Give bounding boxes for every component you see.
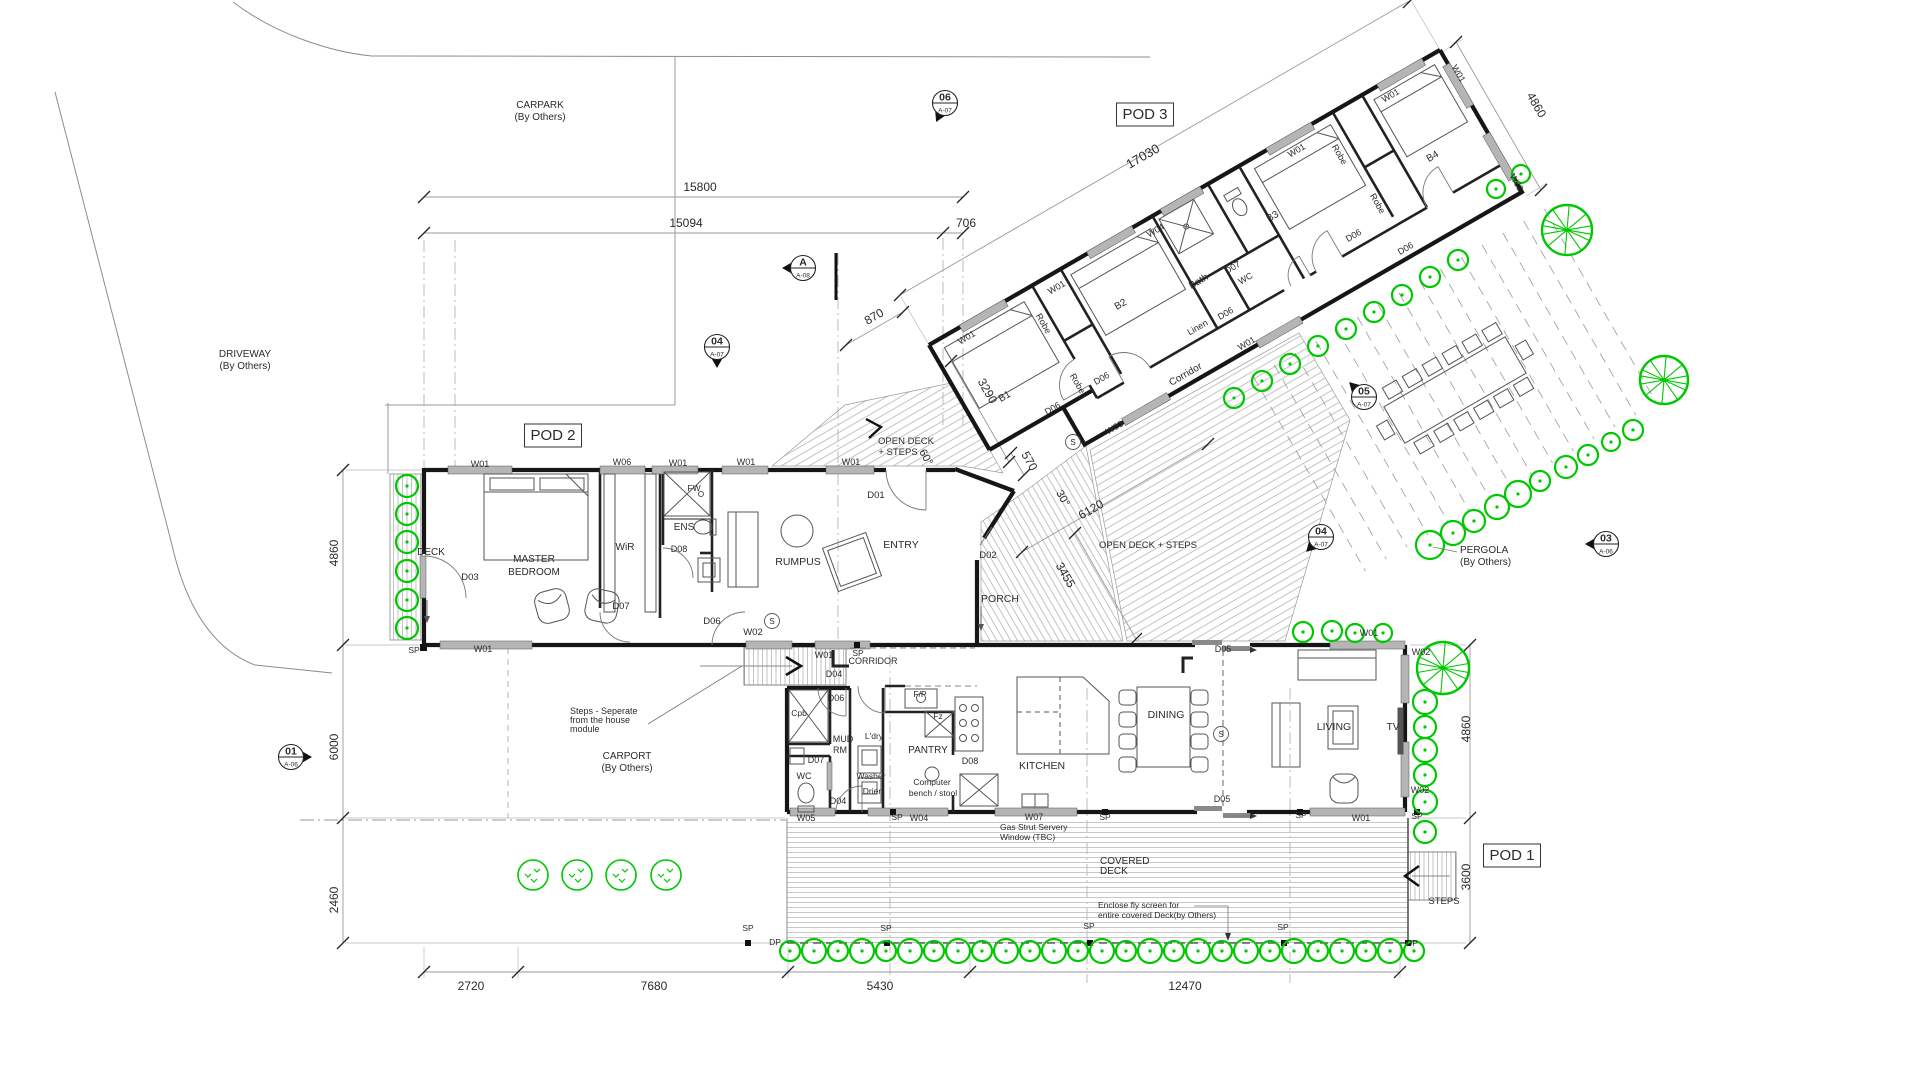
svg-text:2460: 2460 xyxy=(327,886,341,913)
room-b1: B1 xyxy=(997,389,1013,405)
svg-text:2720: 2720 xyxy=(458,979,485,993)
door-d08-kitchen: D08 xyxy=(962,756,979,766)
tree-icon xyxy=(972,941,992,961)
svg-text:A-07: A-07 xyxy=(1357,402,1371,409)
room-ens: ENS xyxy=(674,522,695,533)
driveway-sub: (By Others) xyxy=(219,361,270,372)
carport-tree-icon xyxy=(518,860,548,890)
sp-2: SP xyxy=(1099,812,1111,822)
svg-text:POD 1: POD 1 xyxy=(1489,847,1534,864)
dim-15800: 15800 xyxy=(683,180,717,194)
room-corridor1: CORRIDOR xyxy=(849,656,898,666)
note-fly-1: Enclose fly screen for xyxy=(1098,900,1179,910)
svg-text:OPEN DECK + STEPS: OPEN DECK + STEPS xyxy=(1099,540,1197,551)
tree-icon xyxy=(1414,821,1436,843)
tree-icon xyxy=(1293,622,1313,642)
carpark-sub: (By Others) xyxy=(514,112,565,123)
win-w04-b: W04 xyxy=(910,813,929,823)
svg-text:PERGOLA: PERGOLA xyxy=(1460,545,1509,556)
win-w01-entry: W01 xyxy=(842,457,861,467)
svg-text:OPEN DECK: OPEN DECK xyxy=(878,436,935,447)
svg-text:A-06: A-06 xyxy=(284,762,298,769)
tree-icon xyxy=(780,941,800,961)
robe-2: Robe xyxy=(1068,372,1087,396)
svg-text:Robe: Robe xyxy=(1068,372,1087,396)
note-gas-1: Gas Strut Servery xyxy=(1000,822,1068,832)
svg-text:06: 06 xyxy=(939,92,951,104)
svg-text:(By Others): (By Others) xyxy=(601,763,652,774)
dim-870: 870 xyxy=(862,305,887,327)
sp-d3: SP xyxy=(1083,921,1095,931)
dim-570: 570 xyxy=(1018,449,1040,474)
svg-text:RUMPUS: RUMPUS xyxy=(775,556,821,568)
open-deck-small-1: OPEN DECK xyxy=(878,436,935,447)
tree-icon xyxy=(1448,250,1468,270)
room-kitchen: KITCHEN xyxy=(1019,760,1065,772)
svg-text:870: 870 xyxy=(862,305,887,327)
svg-text:D06: D06 xyxy=(1092,370,1111,387)
open-deck-small-area xyxy=(772,383,1003,473)
svg-text:SP: SP xyxy=(1411,811,1423,821)
fixture-tv: TV xyxy=(1387,722,1400,733)
svg-text:DP: DP xyxy=(1406,938,1418,948)
tree-icon xyxy=(828,941,848,961)
svg-text:DINING: DINING xyxy=(1148,709,1185,721)
dp-2: DP xyxy=(1406,938,1418,948)
svg-text:Washer: Washer xyxy=(857,771,886,781)
carpark-title: CARPARK xyxy=(516,100,564,111)
svg-text:A-07: A-07 xyxy=(710,352,724,359)
fixture-fz: Fz xyxy=(933,711,942,721)
svg-text:BEDROOM: BEDROOM xyxy=(508,567,560,578)
tree-icon xyxy=(1414,764,1436,786)
tree-icon xyxy=(1623,420,1643,440)
room-mud-2: RM xyxy=(833,745,847,755)
marker-06: 06A-07 xyxy=(933,91,958,123)
room-porch: PORCH xyxy=(981,593,1019,605)
fixture-fp: F/P xyxy=(913,689,927,699)
driveway-title: DRIVEWAY xyxy=(219,349,272,360)
tree-icon xyxy=(1505,481,1531,507)
room-dining: DINING xyxy=(1148,709,1185,721)
svg-text:SP: SP xyxy=(891,812,903,822)
svg-text:15800: 15800 xyxy=(683,180,717,194)
carport-tree-icon xyxy=(606,860,636,890)
marker-a: AA-08 xyxy=(782,256,816,281)
tree-icon xyxy=(1530,471,1550,491)
svg-text:A-07: A-07 xyxy=(938,108,952,115)
marker-04-left: 04A-07 xyxy=(705,335,730,369)
svg-text:Robe: Robe xyxy=(1330,143,1349,167)
svg-text:W02: W02 xyxy=(1411,785,1430,795)
tree-icon xyxy=(1602,433,1620,451)
win-w01-p2b: W01 xyxy=(669,458,688,468)
svg-text:D04: D04 xyxy=(830,796,847,806)
svg-text:DP: DP xyxy=(769,937,781,947)
tree-icon xyxy=(1414,716,1436,738)
svg-text:CORRIDOR: CORRIDOR xyxy=(849,656,898,666)
room-wc3: WC xyxy=(1237,270,1255,286)
carport-sub: (By Others) xyxy=(601,763,652,774)
svg-text:(By Others): (By Others) xyxy=(1460,557,1511,568)
room-deck: DECK xyxy=(417,547,445,558)
svg-text:570: 570 xyxy=(1018,449,1040,474)
door-d03: D03 xyxy=(461,572,478,583)
room-entry: ENTRY xyxy=(883,539,918,551)
svg-text:D06: D06 xyxy=(1344,227,1363,244)
svg-text:SP: SP xyxy=(742,923,754,933)
svg-text:Gas Strut Servery: Gas Strut Servery xyxy=(1000,822,1068,832)
svg-text:Computer: Computer xyxy=(913,777,950,787)
door-d06-mud: D06 xyxy=(828,693,845,703)
svg-text:CARPARK: CARPARK xyxy=(516,100,564,111)
win-w01-p2d: W01 xyxy=(474,644,493,654)
sp-d1: SP xyxy=(742,923,754,933)
svg-text:01: 01 xyxy=(285,746,297,758)
pod3-furniture xyxy=(942,61,1469,408)
svg-text:SP: SP xyxy=(408,645,420,655)
door-d04-mud: D04 xyxy=(830,796,847,806)
sp-1: SP xyxy=(891,812,903,822)
tree-icon xyxy=(1364,302,1384,322)
svg-text:D05: D05 xyxy=(1214,794,1231,804)
dim-4860-left: 4860 xyxy=(327,539,341,566)
win-w07: W07 xyxy=(1025,812,1044,822)
svg-text:SP: SP xyxy=(1295,810,1307,820)
svg-text:SP: SP xyxy=(1099,812,1111,822)
tree-icon xyxy=(1463,510,1485,532)
note-gas-2: Window (TBC) xyxy=(1000,832,1055,842)
svg-text:RM: RM xyxy=(833,745,847,755)
svg-text:A-07: A-07 xyxy=(1314,542,1328,549)
svg-text:SP: SP xyxy=(1083,921,1095,931)
svg-text:W05: W05 xyxy=(797,813,816,823)
dim-4860-right: 4860 xyxy=(1459,715,1473,742)
tree-icon xyxy=(1420,267,1440,287)
pod2-title: POD 2 xyxy=(524,424,581,447)
svg-text:Bath: Bath xyxy=(1187,272,1210,292)
tree-icon xyxy=(1164,941,1184,961)
svg-text:STEPS: STEPS xyxy=(1428,896,1459,907)
win-w02-r2: W02 xyxy=(1411,785,1430,795)
svg-text:MASTER: MASTER xyxy=(513,554,555,565)
svg-text:3290: 3290 xyxy=(975,376,1001,406)
carport-tree-icon xyxy=(562,860,592,890)
room-master-2: BEDROOM xyxy=(508,567,560,578)
svg-text:7680: 7680 xyxy=(641,979,668,993)
pod1-title: POD 1 xyxy=(1483,844,1540,867)
svg-text:W01: W01 xyxy=(1360,628,1379,638)
svg-text:Robe: Robe xyxy=(1368,192,1387,216)
switch-1: S xyxy=(765,614,780,629)
floor-plan-drawing: 06A-07AA-0804A-0705A-0704A-0703A-0601A-0… xyxy=(0,0,1920,1080)
note-computer-2: bench / stool xyxy=(909,788,957,798)
svg-text:W01: W01 xyxy=(842,457,861,467)
carport-tree-icon xyxy=(651,860,681,890)
sp-4: SP xyxy=(1411,811,1423,821)
dim-12470: 12470 xyxy=(1168,979,1202,993)
svg-text:D06: D06 xyxy=(703,616,720,627)
door-d07-pod3: D07 xyxy=(1223,259,1242,276)
tree-icon xyxy=(1020,941,1040,961)
note-fly-2: entire covered Deck(by Others) xyxy=(1098,910,1216,920)
tree-icon xyxy=(1116,941,1136,961)
dim-5430: 5430 xyxy=(867,979,894,993)
svg-text:B1: B1 xyxy=(997,389,1013,405)
win-w01-p2c: W01 xyxy=(737,457,756,467)
room-living: LIVING xyxy=(1317,721,1351,733)
pergola-title: PERGOLA xyxy=(1460,545,1509,556)
floor-plan-stage: 06A-07AA-0804A-0705A-0704A-0703A-0601A-0… xyxy=(0,0,1920,1080)
tree-icon xyxy=(1356,941,1376,961)
svg-text:W01: W01 xyxy=(471,459,490,469)
svg-text:4860: 4860 xyxy=(327,539,341,566)
door-d08-ens: D08 xyxy=(671,544,688,554)
svg-text:W01: W01 xyxy=(669,458,688,468)
svg-text:PANTRY: PANTRY xyxy=(908,745,948,756)
steps-right: STEPS xyxy=(1428,896,1459,907)
open-deck-big-area xyxy=(1090,333,1350,641)
svg-text:DECK: DECK xyxy=(417,547,445,558)
room-wir: WiR xyxy=(616,542,635,553)
svg-text:A-06: A-06 xyxy=(1599,549,1613,556)
dim-4860-top: 4860 xyxy=(1524,90,1550,120)
svg-text:SP: SP xyxy=(880,923,892,933)
svg-text:04: 04 xyxy=(1315,526,1327,538)
svg-text:D06: D06 xyxy=(828,693,845,703)
win-w02-r1: W02 xyxy=(1412,647,1431,657)
fixture-washer: Washer xyxy=(857,771,886,781)
svg-text:B2: B2 xyxy=(1113,297,1129,313)
svg-text:D07: D07 xyxy=(808,755,825,765)
tree-icon xyxy=(1413,690,1437,714)
svg-text:04: 04 xyxy=(711,336,723,348)
door-d05-bottom: D05 xyxy=(1214,794,1231,804)
dim-3600-right: 3600 xyxy=(1459,863,1473,890)
svg-text:W01: W01 xyxy=(474,644,493,654)
svg-text:W04: W04 xyxy=(910,813,929,823)
room-wc1: WC xyxy=(797,771,812,781)
tree-icon xyxy=(1578,445,1598,465)
svg-text:Drier: Drier xyxy=(863,786,882,796)
pod1-corridor-dashed xyxy=(850,648,1223,810)
pod1-sliding-doors xyxy=(1192,640,1252,818)
svg-text:L'dry: L'dry xyxy=(865,731,884,741)
win-w01-trees: W01 xyxy=(1360,628,1379,638)
door-d06-rumpus: D06 xyxy=(703,616,720,627)
svg-text:W01: W01 xyxy=(737,457,756,467)
svg-text:Enclose fly screen for: Enclose fly screen for xyxy=(1098,900,1179,910)
svg-text:W02: W02 xyxy=(1412,647,1431,657)
win-w01-kitchen-b: W01 xyxy=(1352,813,1371,823)
svg-text:W06: W06 xyxy=(613,457,632,467)
door-d01: D01 xyxy=(867,490,884,501)
room-pantry: PANTRY xyxy=(908,745,948,756)
win-w02-stair: W02 xyxy=(743,627,763,638)
tree-icon xyxy=(1260,941,1280,961)
svg-text:TV: TV xyxy=(1387,722,1400,733)
fixture-drier: Drier xyxy=(863,786,882,796)
svg-text:S: S xyxy=(1218,730,1223,739)
svg-text:D02: D02 xyxy=(979,550,996,561)
svg-text:module: module xyxy=(570,724,600,734)
svg-text:12470: 12470 xyxy=(1168,979,1202,993)
door-d06-b2: D06 xyxy=(1092,370,1111,387)
svg-text:A-08: A-08 xyxy=(796,273,810,280)
room-covered-2: DECK xyxy=(1100,866,1128,877)
svg-text:POD 2: POD 2 xyxy=(530,427,575,444)
door-d02: D02 xyxy=(979,550,996,561)
dim-3290: 3290 xyxy=(975,376,1001,406)
svg-text:6000: 6000 xyxy=(327,733,341,760)
svg-text:MUD: MUD xyxy=(833,734,854,744)
svg-text:05: 05 xyxy=(1358,386,1370,398)
svg-text:15094: 15094 xyxy=(669,216,703,230)
svg-text:WC: WC xyxy=(1237,270,1255,286)
svg-text:LIVING: LIVING xyxy=(1317,721,1351,733)
svg-text:5430: 5430 xyxy=(867,979,894,993)
svg-text:Cpb: Cpb xyxy=(791,708,807,718)
sp-pod2: SP xyxy=(408,645,420,655)
dim-15094: 15094 xyxy=(669,216,703,230)
svg-text:+ STEPS: + STEPS xyxy=(878,447,917,458)
room-master-1: MASTER xyxy=(513,554,555,565)
dp-1: DP xyxy=(769,937,781,947)
svg-text:(By Others): (By Others) xyxy=(219,361,270,372)
marker-01: 01A-06 xyxy=(279,745,313,770)
tree-icon xyxy=(1392,285,1412,305)
room-b4: B4 xyxy=(1425,149,1441,165)
dim-2720: 2720 xyxy=(458,979,485,993)
svg-text:SP: SP xyxy=(1277,922,1289,932)
svg-text:FW: FW xyxy=(687,483,700,493)
sp-d4: SP xyxy=(1277,922,1289,932)
svg-text:bench / stool: bench / stool xyxy=(909,788,957,798)
svg-text:D08: D08 xyxy=(671,544,688,554)
svg-text:706: 706 xyxy=(956,216,976,230)
svg-text:S: S xyxy=(1070,438,1075,447)
win-w01-p2a: W01 xyxy=(471,459,490,469)
d05-arrow-top xyxy=(1250,647,1257,653)
robe-3: Robe xyxy=(1330,143,1349,167)
fixture-fw: FW xyxy=(687,483,700,493)
large-tree-icon xyxy=(1640,356,1688,404)
large-tree-icon xyxy=(1542,205,1592,255)
tree-icon xyxy=(1416,531,1444,559)
room-bath: Bath xyxy=(1187,272,1210,292)
svg-text:WiR: WiR xyxy=(616,542,635,553)
door-d07-wc: D07 xyxy=(808,755,825,765)
svg-text:S: S xyxy=(769,617,774,626)
open-deck-small-2: + STEPS xyxy=(878,447,917,458)
room-ldry: L'dry xyxy=(865,731,884,741)
tree-icon xyxy=(1322,621,1342,641)
open-deck-big: OPEN DECK + STEPS xyxy=(1099,540,1197,551)
tree-icon xyxy=(1487,180,1505,198)
svg-text:D07: D07 xyxy=(612,601,629,612)
svg-text:POD 3: POD 3 xyxy=(1122,106,1167,123)
room-b2: B2 xyxy=(1113,297,1129,313)
tree-icon xyxy=(1068,941,1088,961)
svg-text:DRIVEWAY: DRIVEWAY xyxy=(219,349,272,360)
robe-4: Robe xyxy=(1368,192,1387,216)
svg-text:17030: 17030 xyxy=(1123,141,1162,172)
svg-text:B4: B4 xyxy=(1425,149,1441,165)
dim-706: 706 xyxy=(956,216,976,230)
svg-text:WC: WC xyxy=(797,771,812,781)
svg-text:D01: D01 xyxy=(867,490,884,501)
door-d06-b3: D06 xyxy=(1344,227,1363,244)
win-w01-b2: W01 xyxy=(1046,278,1067,296)
room-mud-1: MUD xyxy=(833,734,854,744)
svg-text:Fz: Fz xyxy=(933,711,942,721)
svg-text:(By Others): (By Others) xyxy=(514,112,565,123)
svg-text:Window (TBC): Window (TBC) xyxy=(1000,832,1055,842)
door-d05-top: D05 xyxy=(1215,644,1232,654)
svg-text:4860: 4860 xyxy=(1459,715,1473,742)
svg-text:KITCHEN: KITCHEN xyxy=(1019,760,1065,772)
dim-7680: 7680 xyxy=(641,979,668,993)
tree-icon xyxy=(1212,941,1232,961)
carport-title: CARPORT xyxy=(603,751,652,762)
svg-text:W01: W01 xyxy=(1046,278,1067,296)
svg-text:A: A xyxy=(799,257,807,269)
svg-text:ENS: ENS xyxy=(674,522,695,533)
tree-icon xyxy=(1308,941,1328,961)
win-w05: W05 xyxy=(797,813,816,823)
door-d07-wir: D07 xyxy=(612,601,629,612)
win-w06: W06 xyxy=(613,457,632,467)
svg-text:D03: D03 xyxy=(461,572,478,583)
svg-text:D04: D04 xyxy=(826,669,843,679)
svg-text:ENTRY: ENTRY xyxy=(883,539,918,551)
tree-icon xyxy=(1555,456,1577,478)
win-w01-entry-b: W01 xyxy=(815,650,834,660)
note-computer-1: Computer xyxy=(913,777,950,787)
sp-3: SP xyxy=(1295,810,1307,820)
tree-icon xyxy=(1441,521,1465,545)
fixture-cpb: Cpb xyxy=(791,708,807,718)
tree-icon xyxy=(924,941,944,961)
dim-6000-left: 6000 xyxy=(327,733,341,760)
marker-03: 03A-06 xyxy=(1585,532,1619,557)
svg-text:D05: D05 xyxy=(1215,644,1232,654)
svg-text:D08: D08 xyxy=(962,756,979,766)
tree-icon xyxy=(1413,738,1437,762)
svg-text:CARPORT: CARPORT xyxy=(603,751,652,762)
svg-text:DECK: DECK xyxy=(1100,866,1128,877)
pod3-title: POD 3 xyxy=(1116,103,1173,126)
sp-d2: SP xyxy=(880,923,892,933)
svg-text:W01: W01 xyxy=(1352,813,1371,823)
svg-text:3600: 3600 xyxy=(1459,863,1473,890)
svg-text:entire covered Deck(by Others): entire covered Deck(by Others) xyxy=(1098,910,1216,920)
tree-icon xyxy=(1336,319,1356,339)
note-steps-3: module xyxy=(570,724,600,734)
svg-text:F/P: F/P xyxy=(913,689,927,699)
svg-text:W01: W01 xyxy=(815,650,834,660)
pod1-interior-walls xyxy=(787,650,1193,812)
svg-text:W07: W07 xyxy=(1025,812,1044,822)
pergola-sub: (By Others) xyxy=(1460,557,1511,568)
switch-2: S xyxy=(1066,435,1081,450)
dim-17030: 17030 xyxy=(1123,141,1162,172)
door-d04-corr: D04 xyxy=(826,669,843,679)
tree-icon xyxy=(1308,336,1328,356)
svg-text:03: 03 xyxy=(1600,533,1612,545)
site-boundary xyxy=(55,2,1150,820)
svg-text:4860: 4860 xyxy=(1524,90,1550,120)
